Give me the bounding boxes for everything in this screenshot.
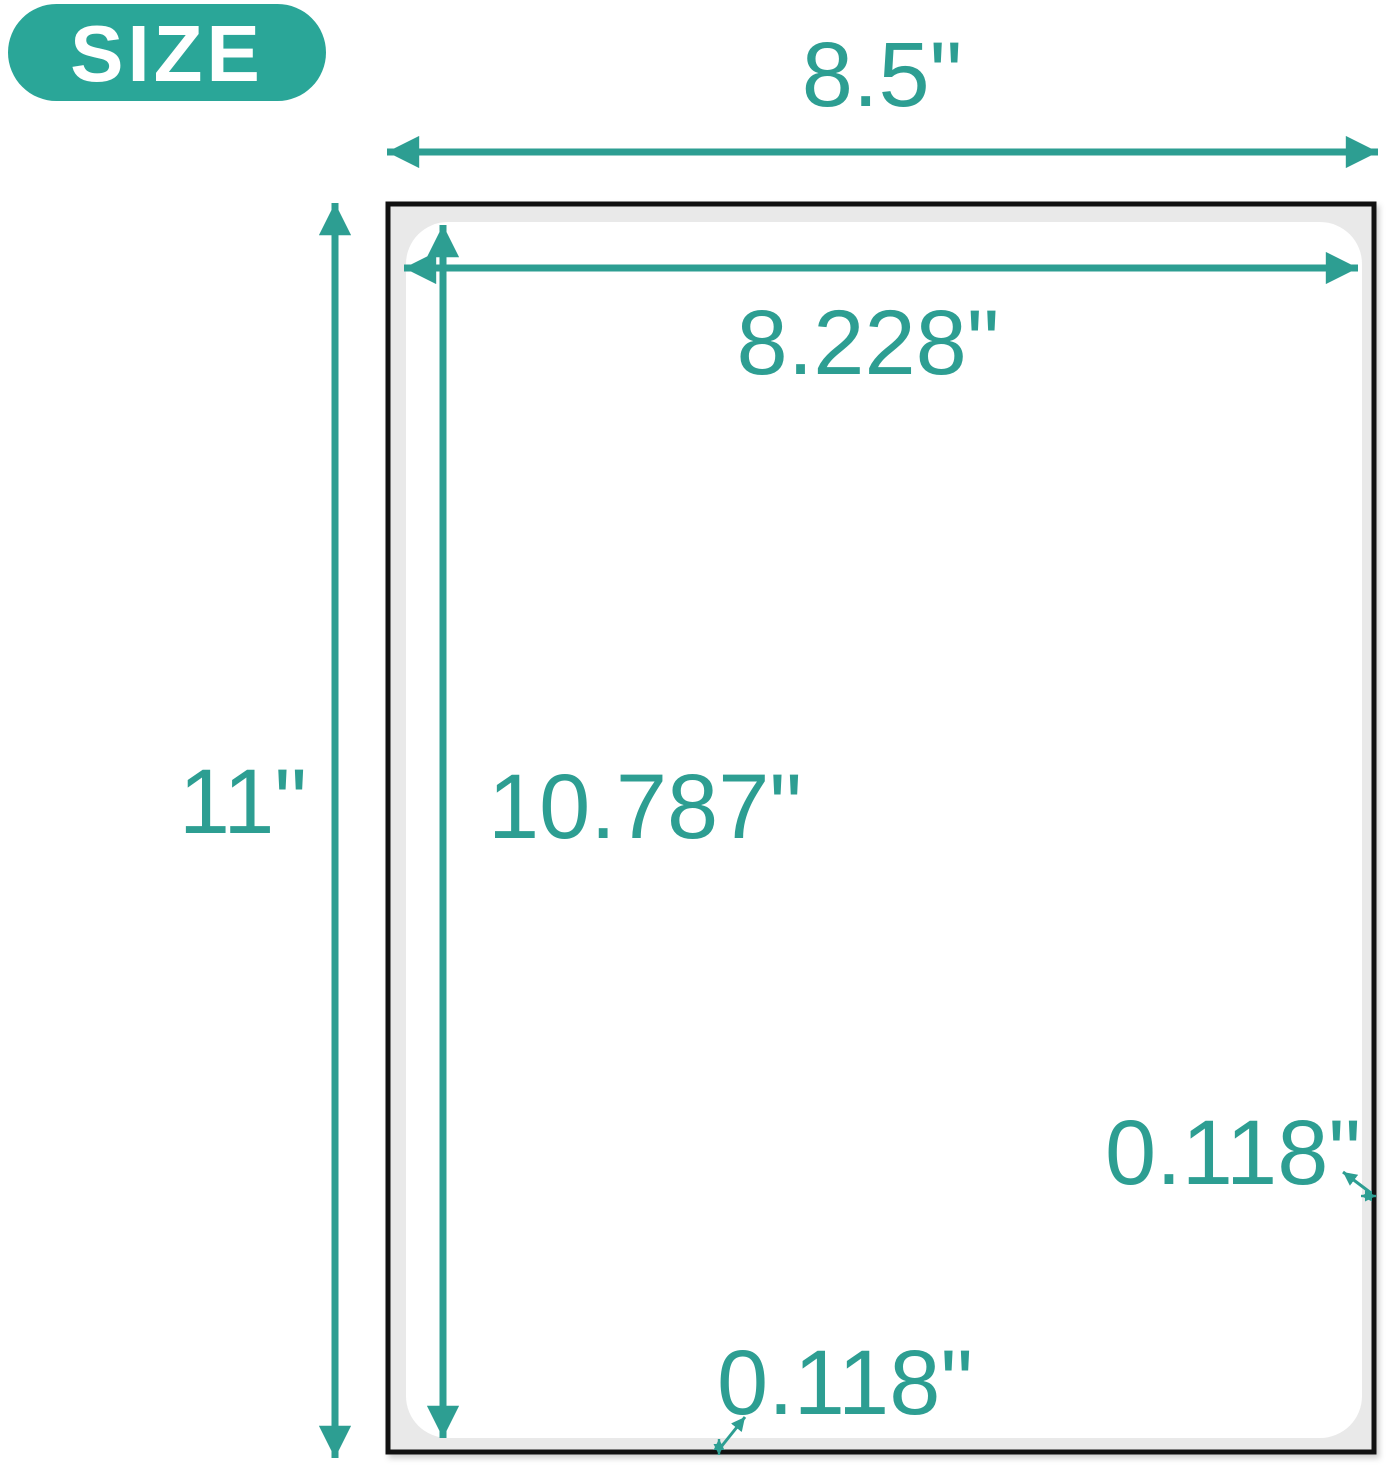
right-margin-callout: 0.118" [1105,1102,1376,1204]
bottom-margin-value: 0.118" [717,1332,973,1434]
size-badge-label: SIZE [70,9,264,98]
sheet-height-value: 11" [179,751,307,853]
label-width-value: 8.228" [737,292,1000,394]
diagram-canvas: SIZE 8.5" 11" 8.228" 10.787" 0.118" 0.11… [0,0,1386,1472]
sheet-width-value: 8.5" [802,24,963,126]
size-badge: SIZE [8,4,326,101]
label-height-value: 10.787" [488,756,802,858]
right-margin-value: 0.118" [1105,1102,1361,1204]
size-spec-diagram: SIZE 8.5" 11" 8.228" 10.787" 0.118" 0.11… [0,0,1386,1472]
